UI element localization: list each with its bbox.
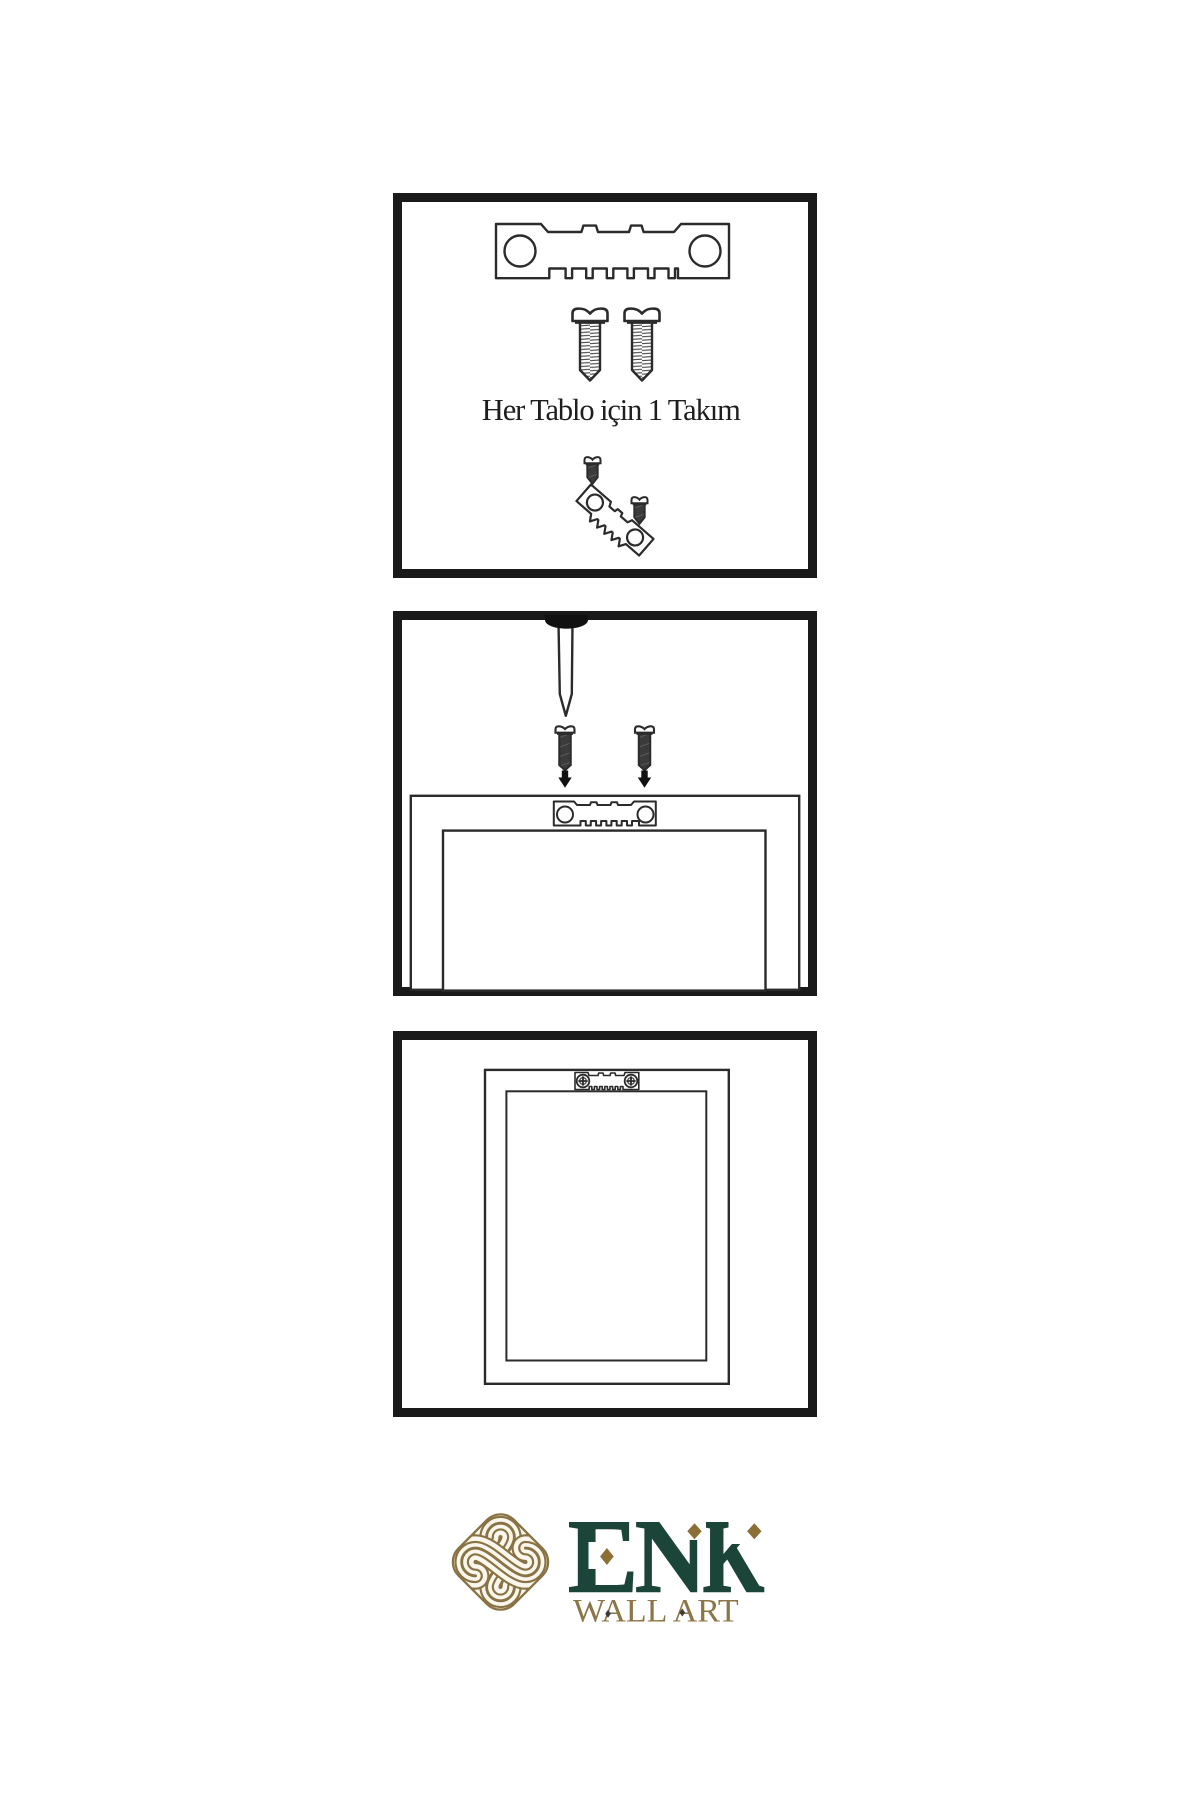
svg-text:WALL ART: WALL ART <box>573 1594 739 1630</box>
svg-text:Her Tablo için 1 Takım: Her Tablo için 1 Takım <box>482 393 741 427</box>
